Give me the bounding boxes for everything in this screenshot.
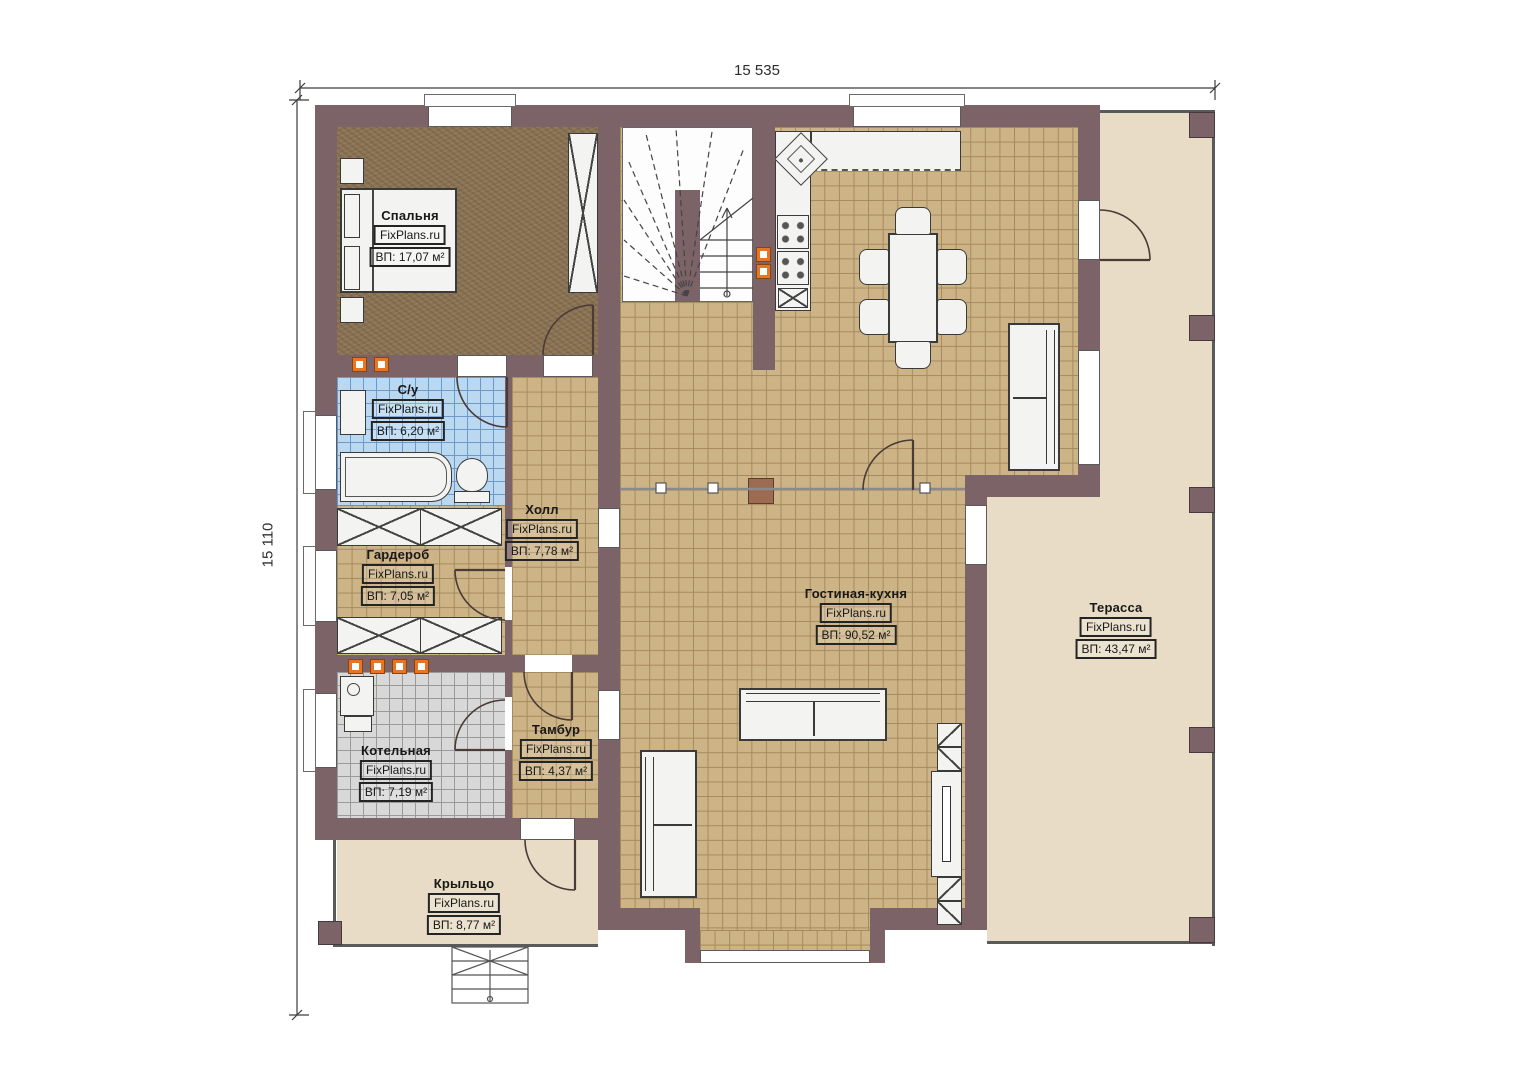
chair xyxy=(859,299,889,335)
room-name: Котельная xyxy=(359,743,433,758)
stove xyxy=(777,215,809,249)
watermark: FixPlans.ru xyxy=(820,603,892,623)
wall-segment xyxy=(1078,260,1100,350)
window xyxy=(428,105,512,127)
wall-segment xyxy=(505,377,512,505)
wall-segment xyxy=(598,105,620,508)
bay-wall xyxy=(870,930,885,963)
bay-window xyxy=(700,950,870,963)
terrace-post xyxy=(1189,727,1215,753)
chair xyxy=(937,299,967,335)
window-sill xyxy=(849,94,965,107)
window-sill xyxy=(303,546,316,626)
room-area: ВП: 43,47 м² xyxy=(1076,639,1157,659)
wall-segment xyxy=(505,655,525,672)
wall-segment xyxy=(965,475,1100,497)
closet xyxy=(420,508,502,546)
room-area: ВП: 7,78 м² xyxy=(505,541,579,561)
pillow xyxy=(344,246,360,290)
toilet-tank xyxy=(454,491,490,503)
terrace-edge xyxy=(1212,110,1215,946)
room-area: ВП: 7,05 м² xyxy=(361,586,435,606)
window xyxy=(853,105,961,127)
room-label-porch: Крыльцо FixPlans.ru ВП: 8,77 м² xyxy=(427,876,501,935)
socket-marker xyxy=(392,659,407,674)
room-label-vestibule: Тамбур FixPlans.ru ВП: 4,37 м² xyxy=(519,722,593,781)
room-name: Холл xyxy=(505,502,579,517)
socket-marker xyxy=(370,659,385,674)
chair xyxy=(895,341,931,369)
nightstand xyxy=(340,297,364,323)
toilet xyxy=(456,458,488,492)
chair xyxy=(895,207,931,235)
closet xyxy=(337,617,421,654)
terrace-door-opening xyxy=(1078,200,1100,260)
room-label-hall: Холл FixPlans.ru ВП: 7,78 м² xyxy=(505,502,579,561)
dimension-top-label: 15 535 xyxy=(734,62,780,79)
room-area: ВП: 7,19 м² xyxy=(359,782,433,802)
window-sill xyxy=(424,94,516,107)
room-label-bathroom: С/у FixPlans.ru ВП: 6,20 м² xyxy=(371,382,445,441)
floor-plan: 15 535 15 110 Спальня FixPlans.ru ВП: 17… xyxy=(0,0,1528,1080)
bedroom-door-opening xyxy=(543,355,593,377)
dishwasher xyxy=(778,288,808,308)
window xyxy=(598,690,620,740)
tv xyxy=(942,786,951,862)
window xyxy=(965,505,987,565)
window xyxy=(1078,350,1100,465)
window xyxy=(315,415,337,490)
dining-table xyxy=(888,233,938,343)
watermark: FixPlans.ru xyxy=(520,739,592,759)
terrace-edge xyxy=(987,941,1215,944)
tv-cabinet xyxy=(937,747,962,771)
room-name: Терасса xyxy=(1076,600,1157,615)
room-label-terrace: Терасса FixPlans.ru ВП: 43,47 м² xyxy=(1076,600,1157,659)
room-label-boiler-room: Котельная FixPlans.ru ВП: 7,19 м² xyxy=(359,743,433,802)
wall-segment xyxy=(753,105,775,370)
wall-segment xyxy=(572,655,620,672)
closet xyxy=(337,508,421,546)
pillow xyxy=(344,194,360,238)
room-area: ВП: 4,37 м² xyxy=(519,761,593,781)
room-area: ВП: 17,07 м² xyxy=(370,247,451,267)
structural-column xyxy=(748,478,774,504)
terrace-floor-lower xyxy=(987,497,1215,943)
bay-wall xyxy=(685,930,700,963)
bathroom-sink xyxy=(340,390,366,435)
room-label-bedroom: Спальня FixPlans.ru ВП: 17,07 м² xyxy=(370,208,451,267)
room-name: Гостиная-кухня xyxy=(805,586,907,601)
terrace-post xyxy=(1189,917,1215,943)
wall-segment xyxy=(598,908,700,930)
terrace-post xyxy=(1189,315,1215,341)
boiler-unit xyxy=(340,676,374,716)
watermark: FixPlans.ru xyxy=(428,893,500,913)
wall-segment xyxy=(593,355,598,377)
kitchen-counter xyxy=(811,131,961,171)
window-sill xyxy=(303,689,316,772)
chair xyxy=(859,249,889,285)
room-name: Крыльцо xyxy=(427,876,501,891)
closet xyxy=(420,617,502,654)
wall-segment xyxy=(507,355,543,377)
watermark: FixPlans.ru xyxy=(374,225,446,245)
porch-post xyxy=(318,921,342,945)
bathroom-door-opening xyxy=(457,355,507,377)
sofa xyxy=(1008,323,1060,471)
socket-marker xyxy=(352,357,367,372)
terrace-post xyxy=(1189,112,1215,138)
dimension-left-label: 15 110 xyxy=(260,523,277,568)
closet xyxy=(568,133,598,293)
watermark: FixPlans.ru xyxy=(372,399,444,419)
socket-marker xyxy=(414,659,429,674)
room-name: Спальня xyxy=(370,208,451,223)
room-area: ВП: 8,77 м² xyxy=(427,915,501,935)
wall-segment xyxy=(965,497,987,505)
wall-segment xyxy=(505,750,512,818)
stove xyxy=(777,251,809,285)
terrace-floor-upper xyxy=(1100,113,1212,497)
terrace-post xyxy=(1189,487,1215,513)
watermark: FixPlans.ru xyxy=(360,760,432,780)
room-area: ВП: 90,52 м² xyxy=(816,625,897,645)
socket-marker xyxy=(374,357,389,372)
entry-steps xyxy=(452,947,528,1003)
tv-cabinet xyxy=(937,901,962,925)
room-name: Гардероб xyxy=(361,547,435,562)
sofa xyxy=(640,750,697,898)
room-label-living-kitchen: Гостиная-кухня FixPlans.ru ВП: 90,52 м² xyxy=(805,586,907,645)
nightstand xyxy=(340,158,364,184)
stair-newel-wall xyxy=(675,190,700,302)
bathtub xyxy=(340,452,452,502)
wall-segment xyxy=(1078,105,1100,200)
room-name: С/у xyxy=(371,382,445,397)
socket-marker xyxy=(348,659,363,674)
socket-marker xyxy=(756,264,771,279)
socket-marker xyxy=(756,247,771,262)
watermark: FixPlans.ru xyxy=(506,519,578,539)
tv-cabinet xyxy=(937,877,962,901)
watermark: FixPlans.ru xyxy=(362,564,434,584)
tv-cabinet xyxy=(937,723,962,747)
porch-edge xyxy=(333,944,598,947)
wall-segment xyxy=(598,740,620,930)
room-area: ВП: 6,20 м² xyxy=(371,421,445,441)
wall-segment xyxy=(870,908,987,930)
watermark: FixPlans.ru xyxy=(1080,617,1152,637)
room-label-wardrobe: Гардероб FixPlans.ru ВП: 7,05 м² xyxy=(361,547,435,606)
wall-segment xyxy=(965,565,987,930)
window xyxy=(598,508,620,548)
boiler-cabinet xyxy=(344,716,372,732)
window-sill xyxy=(303,411,316,494)
entry-door-opening xyxy=(520,818,575,840)
sofa xyxy=(739,688,887,741)
room-name: Тамбур xyxy=(519,722,593,737)
wall-segment xyxy=(315,818,520,840)
chair xyxy=(937,249,967,285)
window xyxy=(315,550,337,622)
window xyxy=(315,693,337,768)
